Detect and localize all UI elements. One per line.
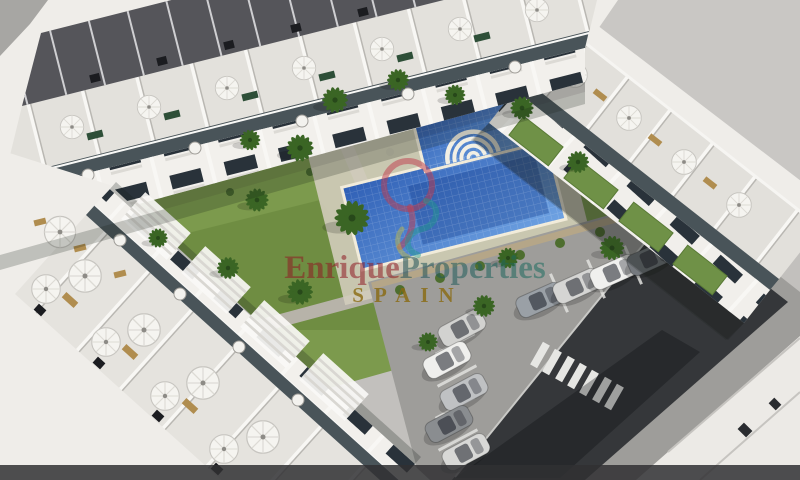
aerial-render: EnriqueProperties SPAIN xyxy=(0,0,800,480)
parasol-icon xyxy=(137,95,160,118)
parasol-icon xyxy=(92,328,121,357)
watermark-brand-part1: Enrique xyxy=(284,250,400,286)
parasol-icon xyxy=(525,0,548,22)
render-viewport: EnriqueProperties SPAIN Ray Adv 3.20.03 … xyxy=(0,0,800,480)
parasol-icon xyxy=(247,421,280,454)
parasol-icon xyxy=(727,193,752,218)
parasol-icon xyxy=(69,260,102,293)
parasol-icon xyxy=(617,106,642,131)
parasol-icon xyxy=(210,435,239,464)
parasol-icon xyxy=(187,367,220,400)
watermark-country-text: SPAIN xyxy=(352,283,463,307)
watermark-brand-part2: Properties xyxy=(400,250,546,286)
parasol-icon xyxy=(32,275,61,304)
parasol-icon xyxy=(128,314,161,347)
watermark-brand-text: EnriqueProperties xyxy=(284,250,546,286)
parasol-icon xyxy=(151,382,180,411)
parasol-icon xyxy=(448,17,471,40)
render-stamp-bar: Ray Adv 3.20.03 | file: URBA23.max | fra… xyxy=(0,465,800,480)
parasol-icon xyxy=(292,56,315,79)
parasol-icon xyxy=(215,76,238,99)
parasol-icon xyxy=(672,150,697,175)
parasol-icon xyxy=(370,37,393,60)
parasol-icon xyxy=(60,115,83,138)
